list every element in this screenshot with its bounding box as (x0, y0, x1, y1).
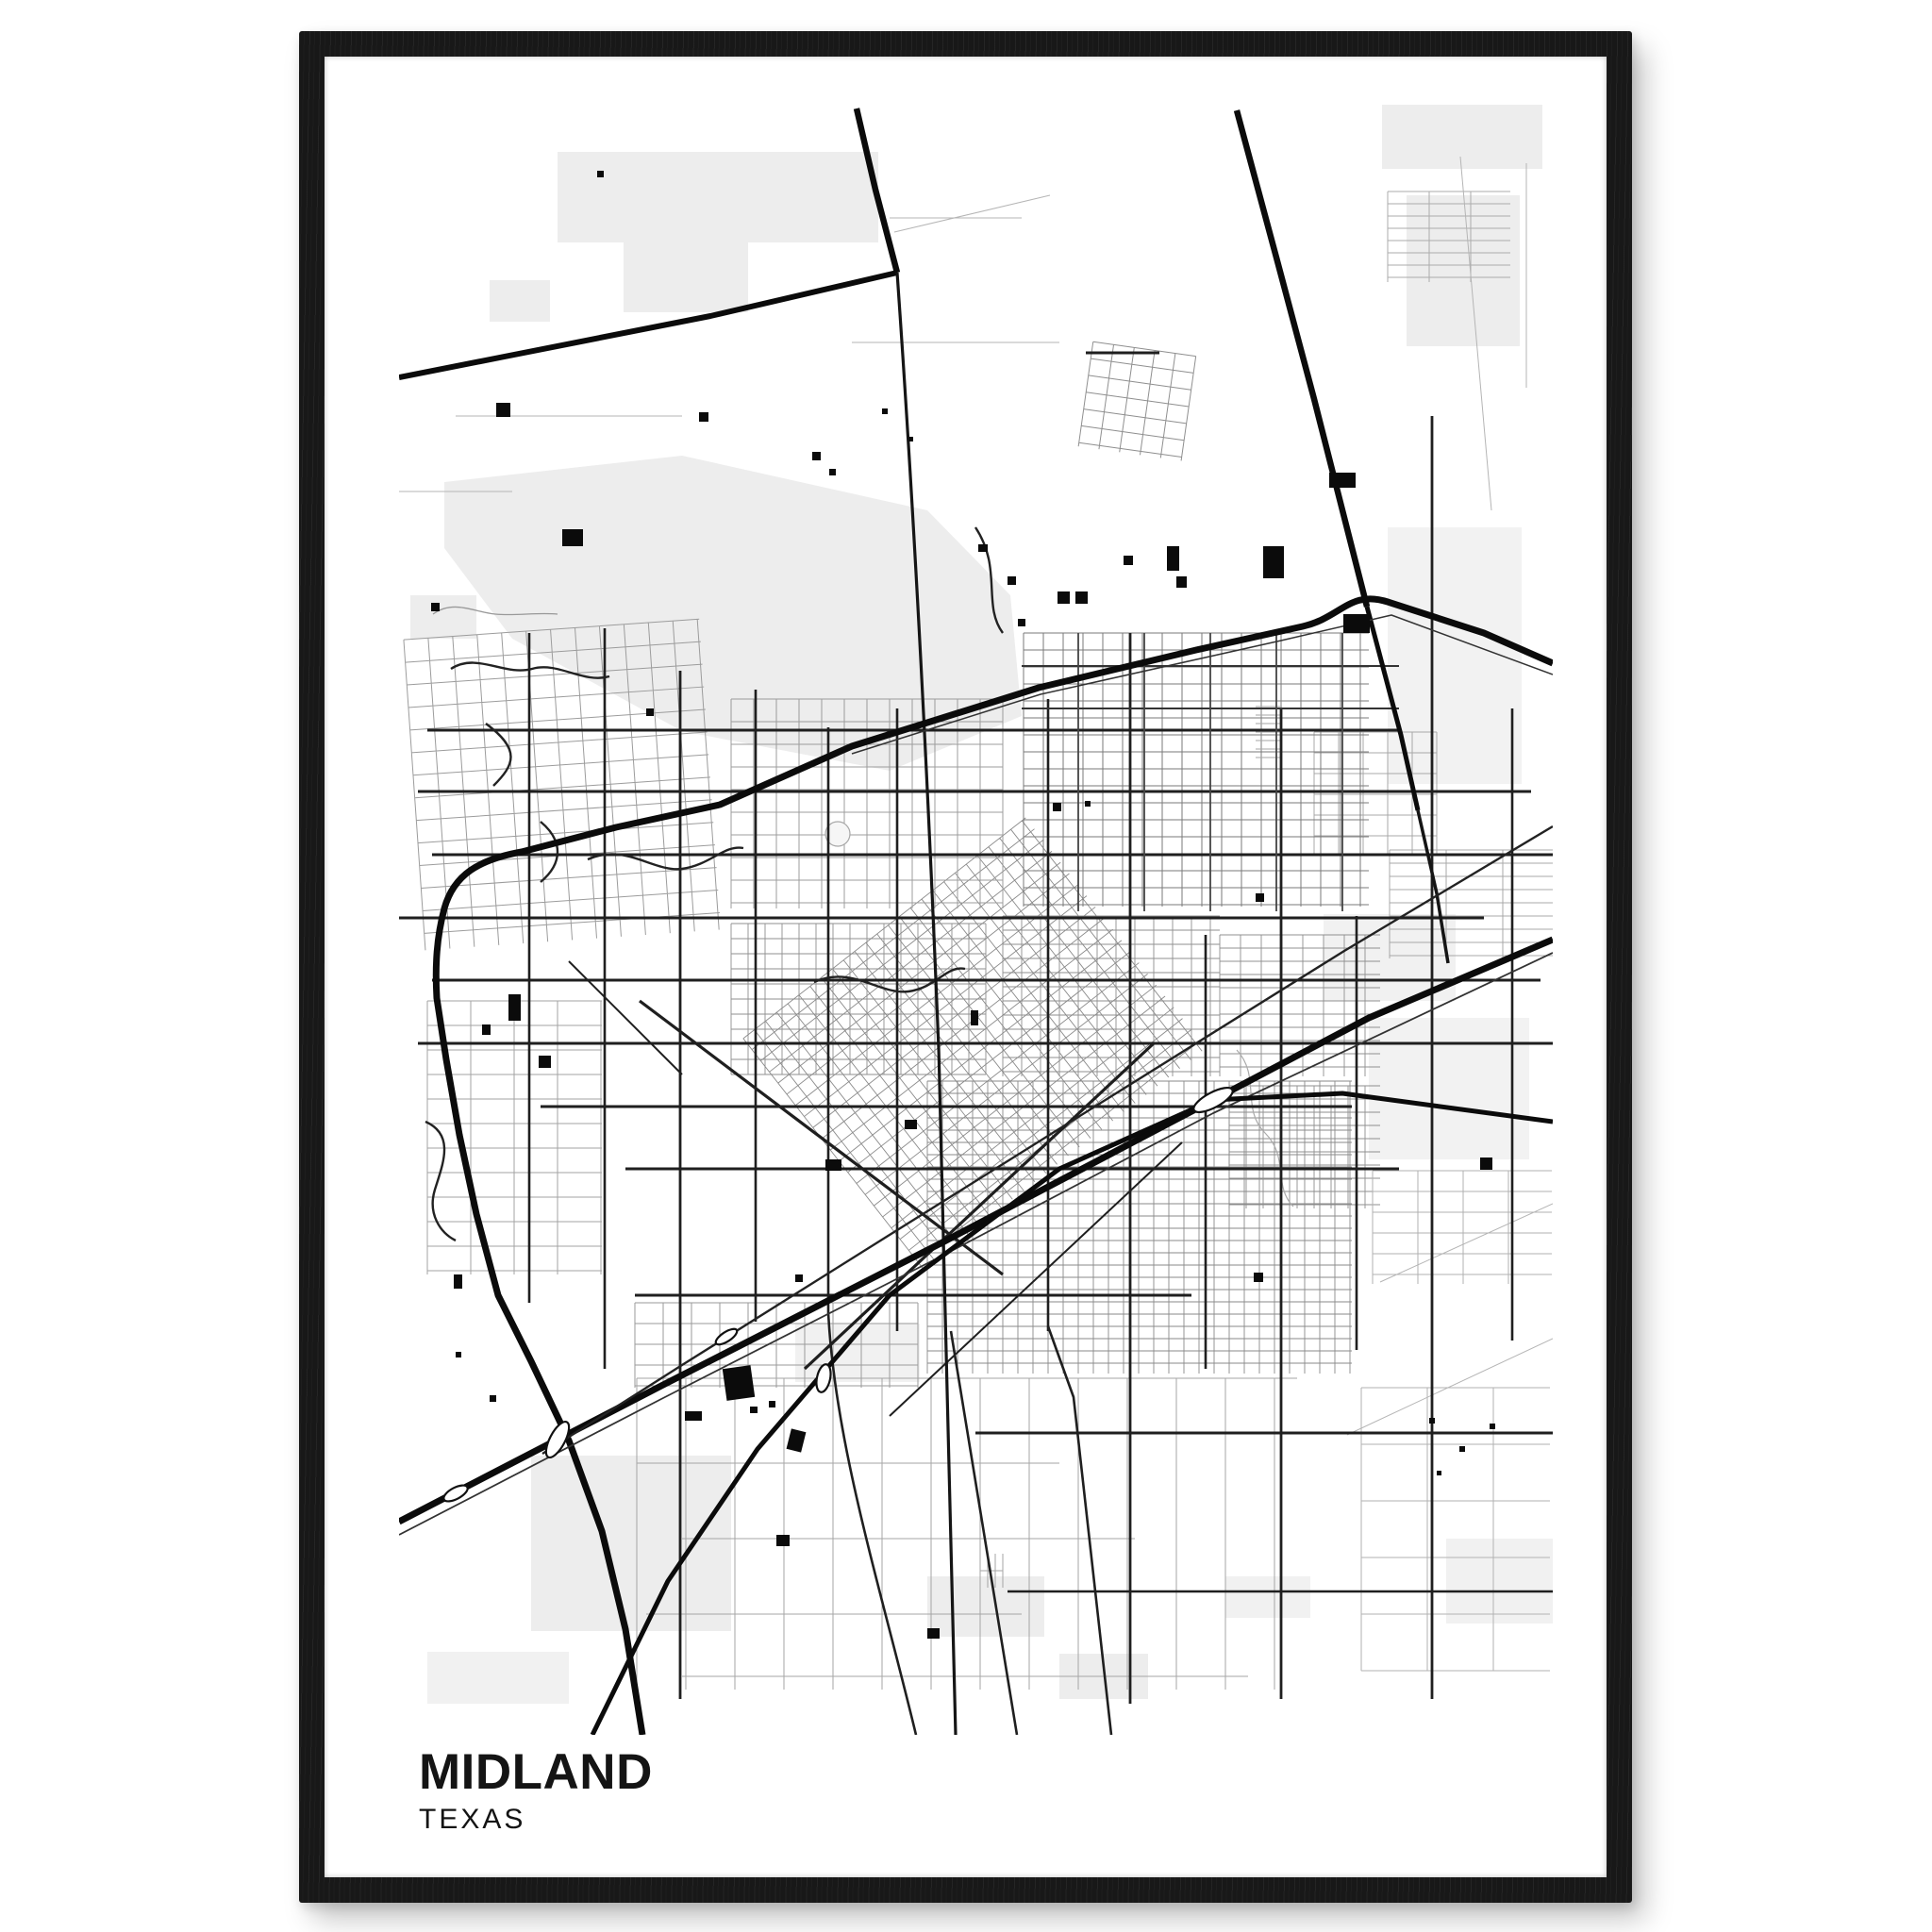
poster-caption: MIDLAND TEXAS (419, 1747, 653, 1834)
poster-subtitle: TEXAS (419, 1806, 653, 1834)
map-areas (410, 105, 1553, 1704)
poster: MIDLAND TEXAS (325, 57, 1607, 1877)
poster-title: MIDLAND (419, 1747, 653, 1797)
framed-map-product-photo: MIDLAND TEXAS (0, 0, 1932, 1932)
poster-frame: MIDLAND TEXAS (299, 31, 1632, 1903)
city-map (399, 105, 1553, 1735)
